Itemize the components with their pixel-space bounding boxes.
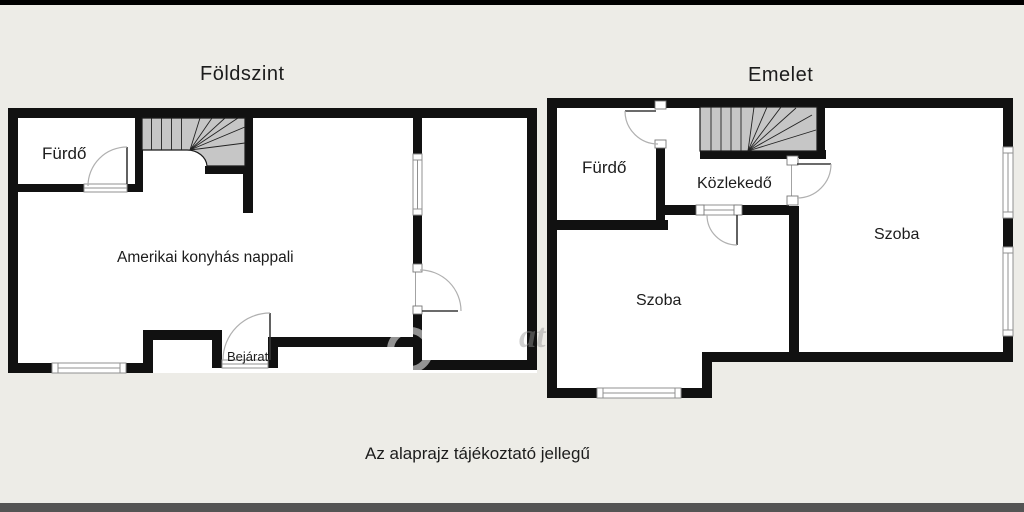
upper-floor-stairs bbox=[700, 107, 817, 151]
disclaimer-caption: Az alaprajz tájékoztató jellegű bbox=[365, 444, 590, 464]
small-room-label: Szoba bbox=[636, 292, 681, 310]
entrance-label: Bejárat bbox=[227, 349, 268, 364]
ground-bathroom-label: Fürdő bbox=[42, 144, 86, 164]
upper-floor-plan bbox=[547, 98, 1013, 398]
ground-floor-plan bbox=[8, 108, 537, 373]
upper-bathroom-label: Fürdő bbox=[582, 158, 626, 178]
ground-floor-title: Földszint bbox=[200, 63, 285, 86]
ground-floor-footprint bbox=[8, 108, 537, 373]
large-room-label: Szoba bbox=[874, 226, 919, 244]
bottom-border-bar bbox=[0, 503, 1024, 512]
watermark-letters: at bbox=[519, 318, 545, 356]
living-room-label: Amerikai konyhás nappali bbox=[117, 249, 294, 267]
watermark-logo-ring bbox=[387, 327, 433, 373]
hallway-label: Közlekedő bbox=[697, 175, 772, 193]
upper-floor-title: Emelet bbox=[748, 64, 813, 87]
floor-plan-page: at Földszint Emelet Fürdő Amerikai konyh… bbox=[0, 0, 1024, 512]
